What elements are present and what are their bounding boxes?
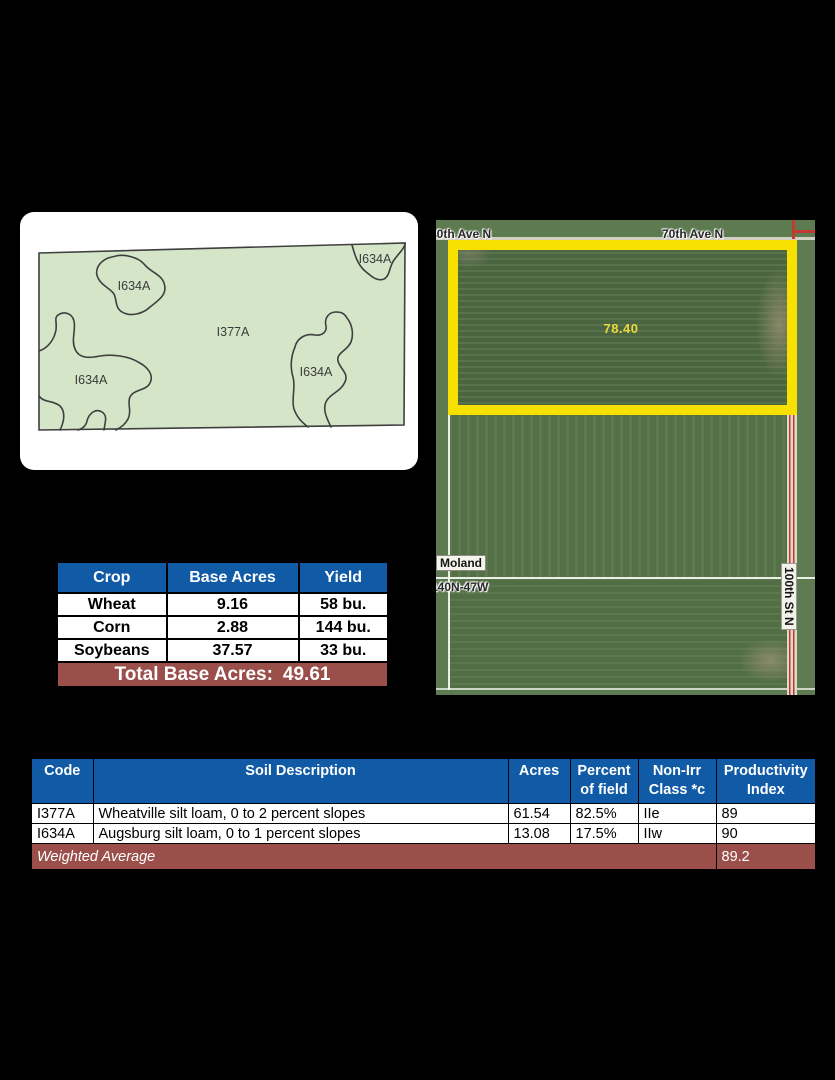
soil-class: IIw xyxy=(638,824,716,844)
weighted-average-value: 89.2 xyxy=(716,844,816,871)
crop-yield: 144 bu. xyxy=(299,616,389,639)
road-100th-st xyxy=(787,413,797,695)
soil-label-top-left: I634A xyxy=(118,279,151,293)
soil-description-table: Code Soil Description Acres Percent of f… xyxy=(30,757,817,871)
crop-header: Crop xyxy=(57,562,167,594)
table-row: Wheat 9.16 58 bu. xyxy=(57,593,389,616)
crop-table-footer-row: Total Base Acres:49.61 xyxy=(57,662,389,688)
soil-percent: 82.5% xyxy=(570,804,638,824)
soil-acres: 13.08 xyxy=(508,824,570,844)
yield-header: Yield xyxy=(299,562,389,594)
weighted-average-label: Weighted Average xyxy=(31,844,716,871)
soil-acres: 61.54 xyxy=(508,804,570,824)
crop-base-acres-table: Crop Base Acres Yield Wheat 9.16 58 bu. … xyxy=(55,560,390,689)
total-base-acres-cell: Total Base Acres:49.61 xyxy=(57,662,389,688)
soil-productivity: 90 xyxy=(716,824,816,844)
field-boundary-west xyxy=(448,415,450,690)
soil-map-card: I634A I634A I377A I634A I634A xyxy=(20,212,418,470)
table-row: Soybeans 37.57 33 bu. xyxy=(57,639,389,662)
road-label-70th-ave-left: 70th Ave N xyxy=(436,227,491,241)
crop-base-acres: 2.88 xyxy=(167,616,299,639)
base-acres-header: Base Acres xyxy=(167,562,299,594)
table-row: Corn 2.88 144 bu. xyxy=(57,616,389,639)
farm-listing-page: I634A I634A I377A I634A I634A 78.40 70th… xyxy=(0,0,835,1080)
crop-name: Wheat xyxy=(57,593,167,616)
table-row: I377A Wheatville silt loam, 0 to 2 perce… xyxy=(31,804,816,824)
total-base-acres-label: Total Base Acres: xyxy=(115,664,273,685)
crop-name: Soybeans xyxy=(57,639,167,662)
road-label-100th-st: 100th St N xyxy=(781,563,797,630)
code-header: Code xyxy=(31,758,93,804)
table-row: I634A Augsburg silt loam, 0 to 1 percent… xyxy=(31,824,816,844)
crop-base-acres: 37.57 xyxy=(167,639,299,662)
soil-code: I634A xyxy=(31,824,93,844)
township-label: 140N-47W xyxy=(436,580,488,594)
crop-table-header-row: Crop Base Acres Yield xyxy=(57,562,389,594)
soil-percent: 17.5% xyxy=(570,824,638,844)
productivity-index-header: Productivity Index xyxy=(716,758,816,804)
soil-code: I377A xyxy=(31,804,93,824)
crop-base-acres: 9.16 xyxy=(167,593,299,616)
middle-field-photo xyxy=(449,415,791,578)
percent-of-field-header: Percent of field xyxy=(570,758,638,804)
soil-label-right: I634A xyxy=(300,365,333,379)
crop-name: Corn xyxy=(57,616,167,639)
soil-description: Wheatville silt loam, 0 to 2 percent slo… xyxy=(93,804,508,824)
bottom-field-photo xyxy=(449,578,791,688)
road-label-70th-ave-center: 70th Ave N xyxy=(662,227,723,241)
soil-table-header-row: Code Soil Description Acres Percent of f… xyxy=(31,758,816,804)
soil-class: IIe xyxy=(638,804,716,824)
non-irr-class-header: Non-Irr Class *c xyxy=(638,758,716,804)
east-field-strip xyxy=(797,240,815,695)
acres-header: Acres xyxy=(508,758,570,804)
total-base-acres-value: 49.61 xyxy=(283,664,331,685)
crop-yield: 58 bu. xyxy=(299,593,389,616)
crop-yield: 33 bu. xyxy=(299,639,389,662)
aerial-map: 78.40 70th Ave N 70th Ave N Moland 140N-… xyxy=(436,220,815,695)
place-label-moland: Moland xyxy=(436,555,486,571)
soil-description: Augsburg silt loam, 0 to 1 percent slope… xyxy=(93,824,508,844)
soil-table-footer-row: Weighted Average 89.2 xyxy=(31,844,816,871)
soil-description-header: Soil Description xyxy=(93,758,508,804)
field-acres-label: 78.40 xyxy=(586,321,656,336)
field-boundary-south xyxy=(436,688,815,690)
soil-label-top-right: I634A xyxy=(359,252,392,266)
soil-productivity: 89 xyxy=(716,804,816,824)
road-red-horizontal xyxy=(792,230,815,233)
soil-label-center: I377A xyxy=(217,325,250,339)
soil-label-bottom-left: I634A xyxy=(75,373,108,387)
soil-map-drawing: I634A I634A I377A I634A I634A xyxy=(20,212,418,470)
township-boundary-line xyxy=(436,577,815,579)
